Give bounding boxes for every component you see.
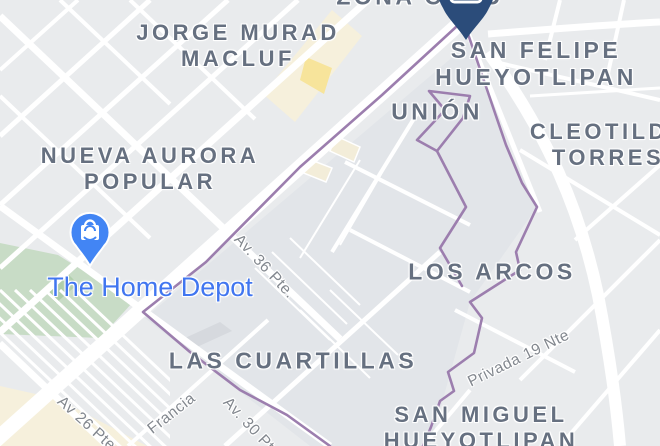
map-canvas[interactable]: ZONA CAPUJORGE MURADMACLUFSAN FELIPEHUEY… bbox=[0, 0, 660, 446]
area-label-line: LOS ARCOS bbox=[408, 258, 575, 285]
area-label-los-arcos: LOS ARCOS bbox=[408, 258, 575, 285]
area-label-line: NUEVA AURORA bbox=[41, 143, 259, 169]
area-label-line: HUEYOTLIPAN bbox=[384, 428, 579, 446]
street-label-francia: Francia bbox=[144, 390, 199, 439]
area-label-line: TORRES bbox=[530, 145, 660, 171]
area-label-line: UNIÓN bbox=[391, 98, 483, 125]
area-label-san-felipe-hueyotlipan: SAN FELIPEHUEYOTLIPAN bbox=[435, 37, 637, 91]
poi-label-the-home-depot[interactable]: The Home Depot bbox=[47, 272, 253, 304]
area-label-nueva-aurora-popular: NUEVA AURORAPOPULAR bbox=[41, 143, 259, 195]
area-label-union: UNIÓN bbox=[391, 98, 483, 125]
area-label-san-miguel-hueyotlipan: SAN MIGUELHUEYOTLIPAN bbox=[384, 402, 579, 446]
area-label-line: JORGE MURAD bbox=[136, 20, 340, 46]
area-label-line: CLEOTILDE bbox=[530, 119, 660, 145]
area-label-line: POPULAR bbox=[41, 169, 259, 195]
area-label-jorge-murad-macluf: JORGE MURADMACLUF bbox=[136, 20, 340, 72]
area-label-line: LAS CUARTILLAS bbox=[169, 347, 417, 374]
area-label-line: SAN FELIPE bbox=[435, 37, 637, 64]
area-label-line: MACLUF bbox=[136, 46, 340, 72]
area-label-cleotilde-torres: CLEOTILDETORRES bbox=[530, 119, 660, 171]
street-label-privada-19-nte: Privada 19 Nte bbox=[465, 326, 573, 391]
area-label-line: SAN MIGUEL bbox=[384, 402, 579, 428]
street-label-av-26-pte: Av 26 Pte bbox=[53, 393, 119, 446]
street-label-av-30-pte: Av. 30 Pte. bbox=[219, 394, 288, 446]
area-label-line: HUEYOTLIPAN bbox=[435, 64, 637, 91]
area-label-las-cuartillas: LAS CUARTILLAS bbox=[169, 347, 417, 374]
